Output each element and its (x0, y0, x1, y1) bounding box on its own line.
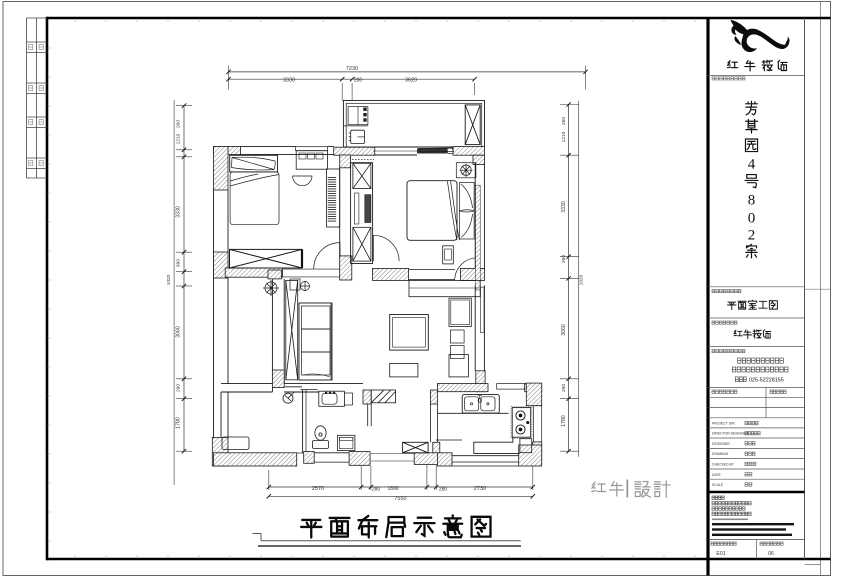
svg-text:2570: 2570 (312, 486, 324, 492)
svg-text:280: 280 (354, 78, 363, 84)
svg-text:3330: 3330 (283, 77, 295, 83)
svg-text:280: 280 (372, 486, 381, 492)
svg-text:025-52228155: 025-52228155 (749, 377, 784, 383)
svg-text:260: 260 (561, 255, 567, 263)
svg-text:1780: 1780 (561, 415, 567, 427)
svg-text:E01: E01 (716, 551, 725, 557)
svg-text:DATE: DATE (712, 473, 722, 477)
svg-text:0: 0 (748, 211, 756, 227)
svg-text:PROJECT DIR.: PROJECT DIR. (712, 422, 736, 426)
svg-text:280: 280 (439, 486, 448, 492)
svg-text:1210: 1210 (561, 131, 567, 142)
svg-text:7550: 7550 (394, 496, 406, 502)
svg-text:1690: 1690 (387, 486, 398, 492)
svg-text:260: 260 (176, 120, 182, 128)
svg-text:4: 4 (748, 157, 756, 173)
svg-text:SCALE: SCALE (712, 483, 724, 487)
svg-text:3620: 3620 (405, 77, 417, 83)
svg-text:1780: 1780 (176, 417, 182, 429)
svg-text:3060: 3060 (561, 324, 567, 336)
svg-text:260: 260 (561, 117, 567, 125)
svg-text:8: 8 (748, 193, 756, 209)
svg-text:DRAWING: DRAWING (712, 452, 729, 456)
svg-text:290: 290 (561, 384, 567, 392)
svg-text:1020: 1020 (166, 274, 172, 285)
svg-text:3330: 3330 (561, 201, 567, 213)
svg-text:290: 290 (176, 384, 182, 392)
svg-text:CHECKED BY: CHECKED BY (712, 462, 735, 466)
svg-text:3060: 3060 (176, 326, 182, 338)
svg-text:DESIGNER: DESIGNER (712, 442, 730, 446)
svg-text:7230: 7230 (346, 66, 358, 72)
svg-text:06: 06 (768, 551, 774, 557)
svg-text:1210: 1210 (176, 133, 182, 144)
svg-text:3330: 3330 (176, 206, 182, 218)
svg-text:2: 2 (748, 228, 756, 244)
svg-text:1020: 1020 (579, 274, 585, 285)
svg-text:DIRECTOR DESIGNER: DIRECTOR DESIGNER (712, 432, 749, 436)
svg-text:2730: 2730 (474, 486, 486, 492)
svg-text:990: 990 (176, 259, 182, 267)
